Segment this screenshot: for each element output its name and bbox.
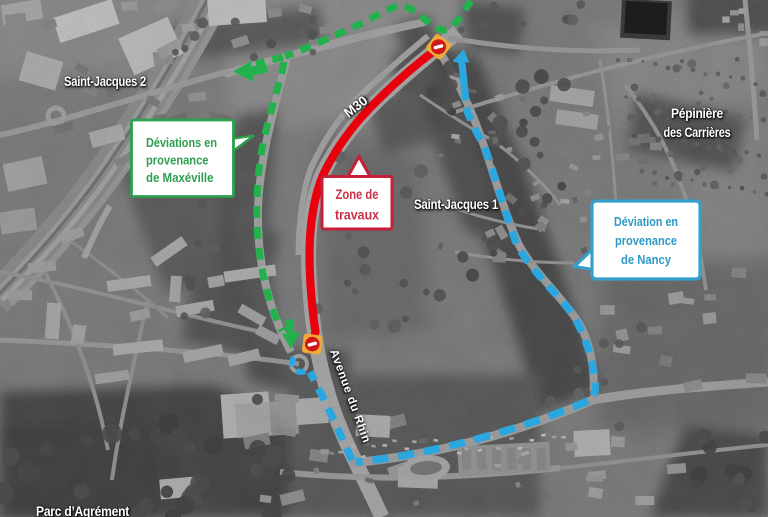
svg-text:des Carrières: des Carrières	[664, 125, 731, 140]
svg-text:Saint-Jacques 2: Saint-Jacques 2	[64, 74, 146, 90]
svg-text:Pépinière: Pépinière	[671, 106, 724, 121]
svg-text:Déviations en: Déviations en	[146, 135, 217, 150]
svg-text:Saint-Jacques 1: Saint-Jacques 1	[414, 197, 498, 213]
svg-text:travaux: travaux	[335, 207, 379, 223]
svg-text:Déviation en: Déviation en	[614, 214, 678, 229]
svg-text:de Nancy: de Nancy	[621, 252, 672, 267]
svg-text:provenance: provenance	[615, 233, 677, 248]
svg-text:provenance: provenance	[146, 153, 209, 168]
svg-text:de Maxéville: de Maxéville	[146, 170, 214, 185]
svg-text:Parc d’Agrément: Parc d’Agrément	[36, 504, 129, 517]
svg-text:Zone de: Zone de	[336, 186, 379, 202]
